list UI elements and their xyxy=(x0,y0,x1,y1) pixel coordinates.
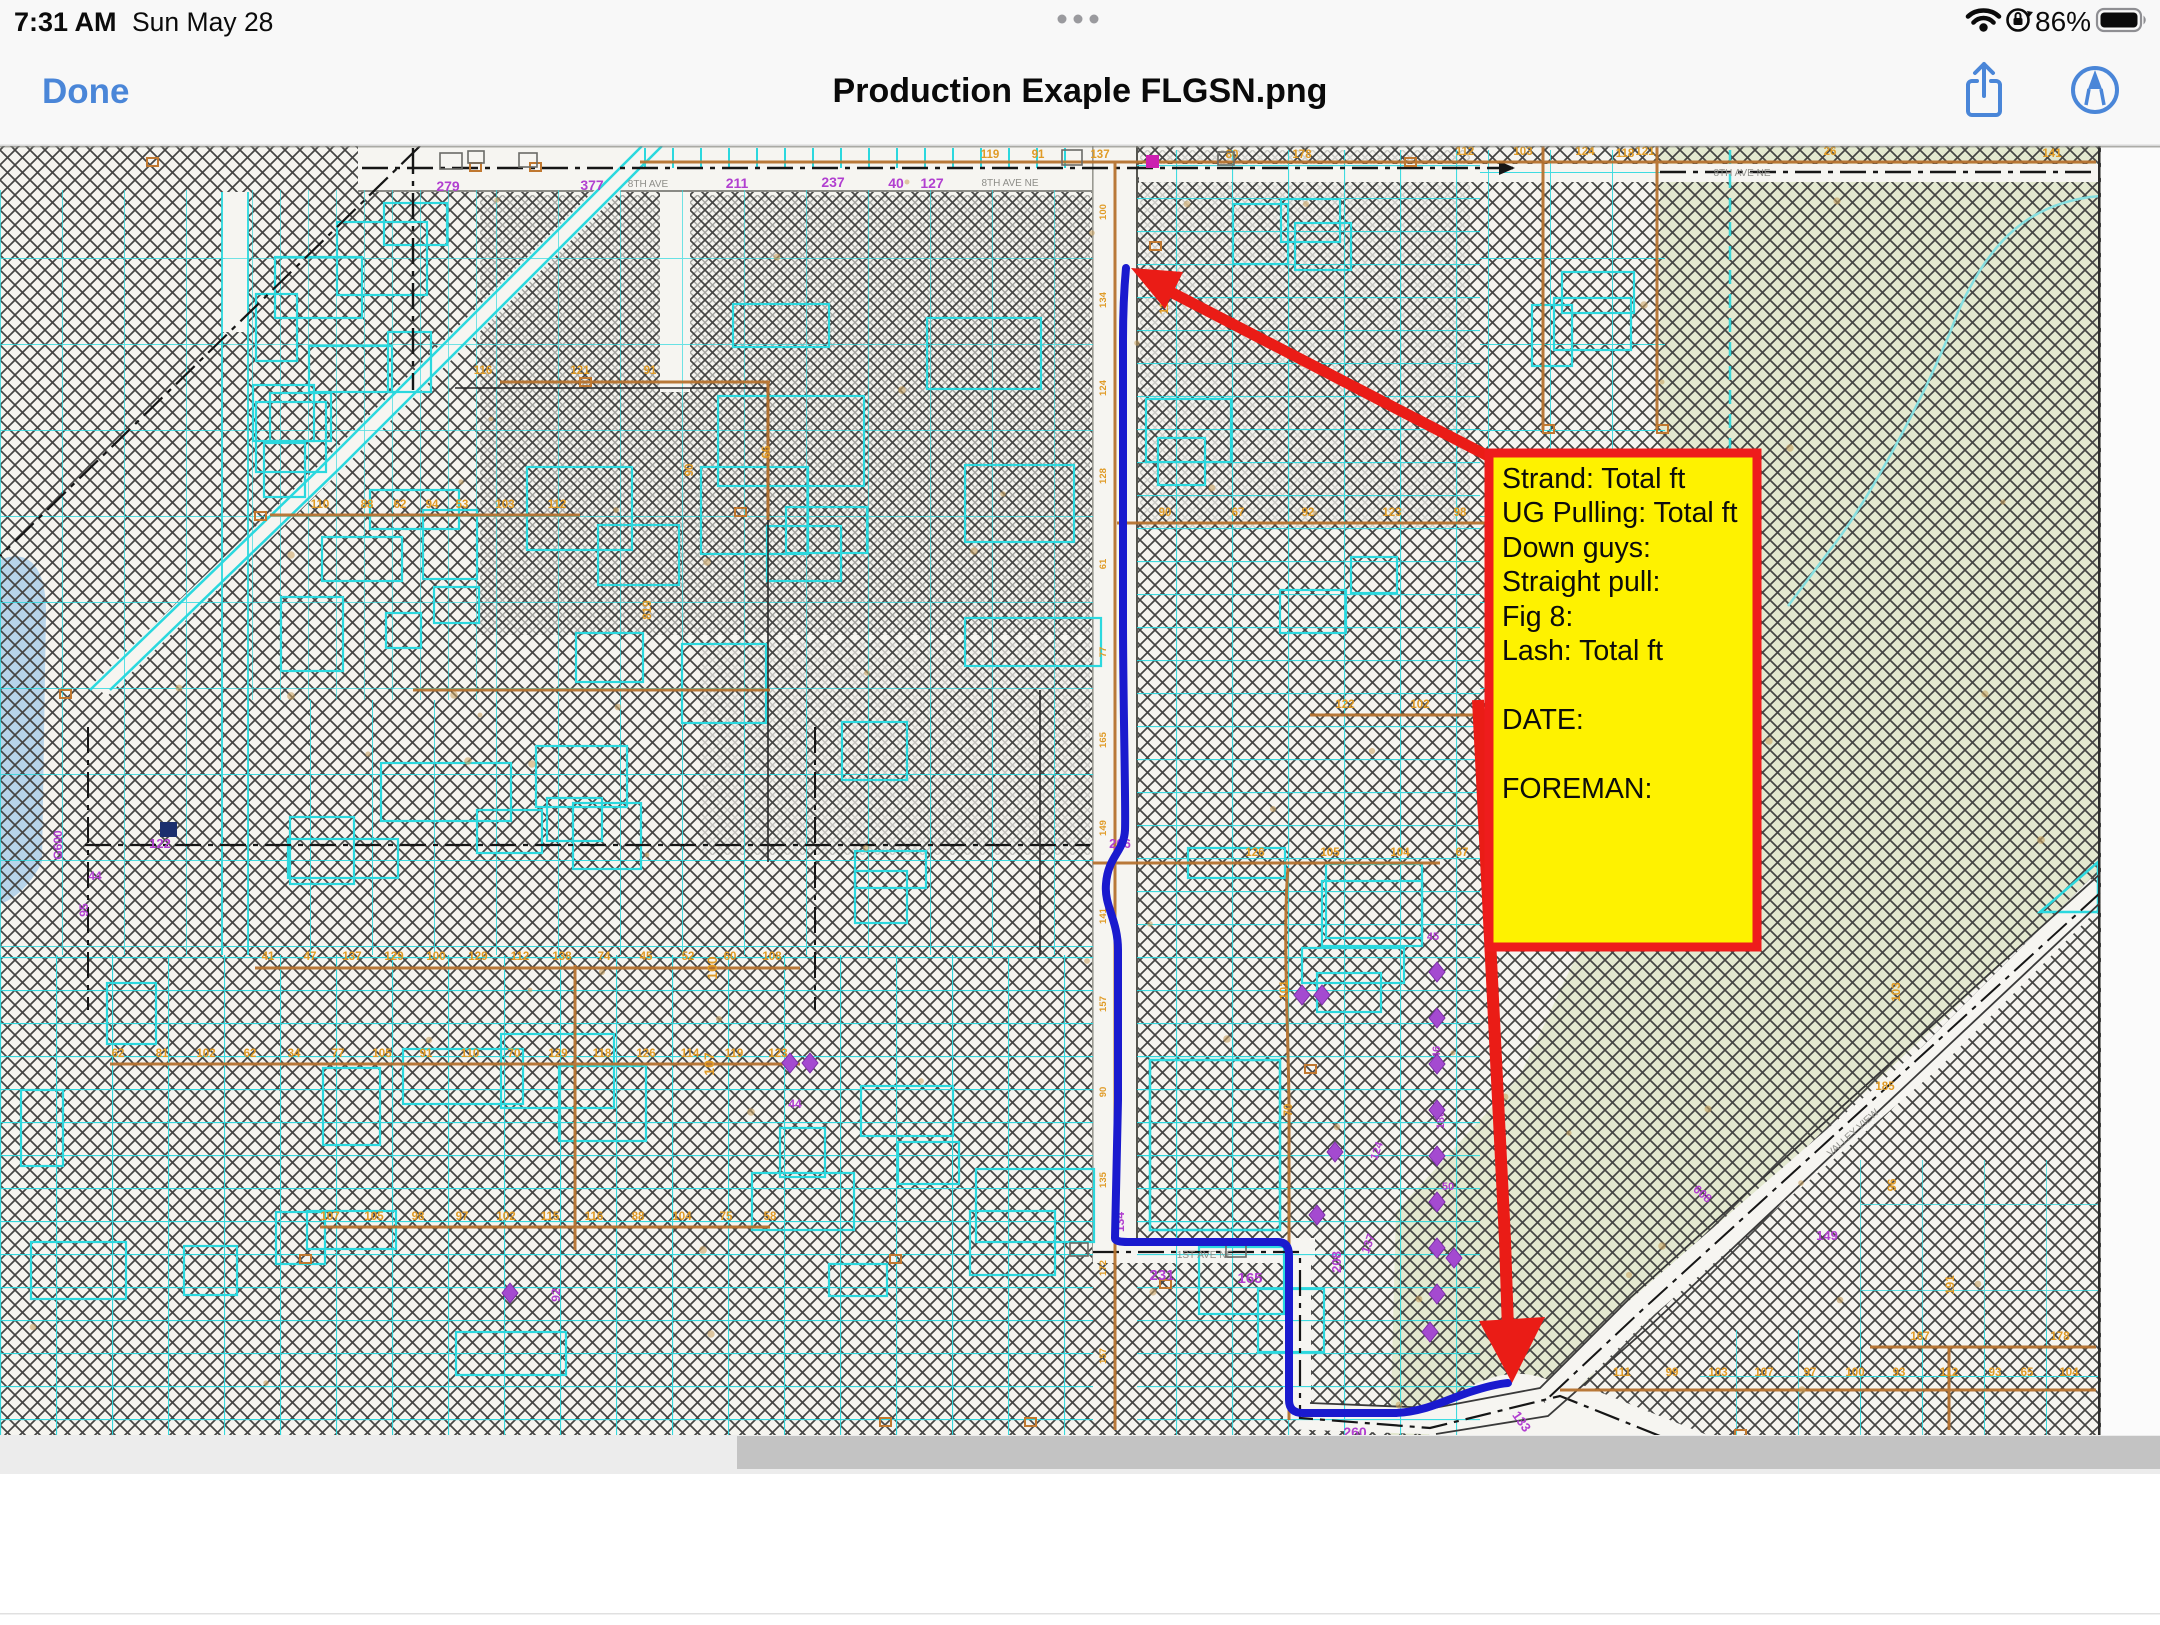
svg-text:112: 112 xyxy=(511,951,530,963)
svg-text:137: 137 xyxy=(342,951,361,963)
svg-text:165: 165 xyxy=(1237,1270,1262,1287)
svg-text:70: 70 xyxy=(1283,1104,1295,1117)
svg-text:119: 119 xyxy=(981,149,1000,161)
svg-text:41: 41 xyxy=(262,951,275,963)
svg-text:112: 112 xyxy=(548,499,567,511)
svg-text:Sun May 28: Sun May 28 xyxy=(132,7,273,37)
svg-text:104: 104 xyxy=(1390,847,1410,859)
svg-text:100: 100 xyxy=(704,956,720,980)
svg-text:157: 157 xyxy=(1098,1348,1109,1364)
svg-text:97: 97 xyxy=(1804,1367,1817,1379)
svg-text:112: 112 xyxy=(1456,146,1475,158)
svg-text:102: 102 xyxy=(1410,699,1429,711)
svg-text:108: 108 xyxy=(762,951,782,963)
svg-text:47: 47 xyxy=(304,951,317,963)
svg-text:93: 93 xyxy=(1893,1367,1906,1379)
svg-text:105: 105 xyxy=(1320,847,1340,859)
svg-text:101: 101 xyxy=(1279,980,1291,1000)
svg-text:90: 90 xyxy=(1098,1087,1109,1098)
svg-text:178: 178 xyxy=(1292,149,1312,161)
svg-text:114: 114 xyxy=(681,1048,700,1060)
svg-text:DATE:: DATE: xyxy=(1502,704,1584,736)
svg-text:105: 105 xyxy=(372,1048,392,1060)
svg-text:FOREMAN:: FOREMAN: xyxy=(1502,773,1652,805)
svg-text:45: 45 xyxy=(640,951,653,963)
svg-text:237: 237 xyxy=(821,174,845,190)
svg-text:138: 138 xyxy=(552,951,572,963)
svg-text:62: 62 xyxy=(112,1048,125,1060)
svg-text:96: 96 xyxy=(1887,1179,1899,1192)
svg-text:53: 53 xyxy=(456,499,469,511)
svg-text:119: 119 xyxy=(725,1048,744,1060)
svg-text:115: 115 xyxy=(541,1211,560,1223)
svg-text:107: 107 xyxy=(320,1211,339,1223)
svg-text:141: 141 xyxy=(2042,148,2062,160)
svg-text:81: 81 xyxy=(156,1048,169,1060)
svg-text:8TH AVE: 8TH AVE xyxy=(628,179,669,190)
svg-text:149: 149 xyxy=(1098,820,1109,836)
svg-text:377: 377 xyxy=(580,177,604,193)
svg-text:99: 99 xyxy=(1666,1367,1679,1379)
svg-text:819: 819 xyxy=(642,600,654,619)
svg-text:103: 103 xyxy=(1513,146,1532,158)
svg-text:167: 167 xyxy=(1910,1331,1929,1343)
svg-text:121: 121 xyxy=(1635,146,1655,158)
svg-text:77: 77 xyxy=(1098,647,1109,658)
svg-text:231: 231 xyxy=(1149,1267,1174,1284)
svg-text:100: 100 xyxy=(426,951,445,963)
svg-text:191: 191 xyxy=(1945,1275,1957,1295)
svg-text:91: 91 xyxy=(644,365,657,377)
svg-text:122: 122 xyxy=(1335,699,1354,711)
svg-text:61: 61 xyxy=(1098,558,1109,569)
svg-text:97: 97 xyxy=(456,1211,469,1223)
svg-text:62: 62 xyxy=(394,499,407,511)
svg-text:66: 66 xyxy=(761,446,773,459)
svg-text:40: 40 xyxy=(888,175,904,191)
svg-text:91: 91 xyxy=(420,1048,433,1060)
svg-text:1ST AVE NE: 1ST AVE NE xyxy=(1177,1250,1234,1261)
svg-text:8TH AVE NE: 8TH AVE NE xyxy=(981,178,1038,189)
svg-text:52: 52 xyxy=(682,951,695,963)
svg-text:105: 105 xyxy=(364,1211,384,1223)
svg-text:67: 67 xyxy=(1232,507,1245,519)
svg-text:118: 118 xyxy=(593,1048,612,1060)
svg-text:92: 92 xyxy=(549,1288,563,1302)
svg-text:118: 118 xyxy=(1616,148,1635,160)
svg-text:110: 110 xyxy=(311,499,330,511)
svg-text:116: 116 xyxy=(585,1211,604,1223)
svg-text:60: 60 xyxy=(724,951,737,963)
svg-text:126: 126 xyxy=(636,1048,655,1060)
svg-text:88: 88 xyxy=(632,1211,645,1223)
svg-text:107: 107 xyxy=(701,1052,717,1076)
svg-text:103: 103 xyxy=(495,499,514,511)
svg-text:124: 124 xyxy=(1575,146,1595,158)
svg-text:103: 103 xyxy=(1891,982,1903,1001)
svg-text:126: 126 xyxy=(1245,847,1264,859)
svg-text:104: 104 xyxy=(672,1211,692,1223)
svg-text:94: 94 xyxy=(426,499,439,511)
svg-text:107: 107 xyxy=(1754,1367,1773,1379)
svg-text:95: 95 xyxy=(77,903,91,917)
svg-text:Down guys:: Down guys: xyxy=(1502,532,1651,564)
svg-text:Production Exaple FLGSN.png: Production Exaple FLGSN.png xyxy=(833,72,1328,110)
svg-text:67: 67 xyxy=(1456,847,1469,859)
svg-text:102: 102 xyxy=(196,1048,215,1060)
svg-text:7:31 AM: 7:31 AM xyxy=(14,7,117,37)
svg-text:100: 100 xyxy=(1845,1367,1864,1379)
svg-text:279: 279 xyxy=(436,178,460,194)
svg-text:102: 102 xyxy=(496,1211,515,1223)
svg-text:100: 100 xyxy=(1098,204,1109,220)
svg-text:8TH AVE NE: 8TH AVE NE xyxy=(1713,168,1770,179)
svg-text:98: 98 xyxy=(412,1211,425,1223)
svg-text:121: 121 xyxy=(570,365,590,377)
svg-text:165: 165 xyxy=(1098,731,1109,748)
svg-text:92: 92 xyxy=(1302,507,1315,519)
svg-text:128: 128 xyxy=(1098,468,1109,484)
svg-text:172: 172 xyxy=(1098,1260,1109,1276)
svg-text:34: 34 xyxy=(288,1048,301,1060)
svg-text:127: 127 xyxy=(920,175,944,191)
svg-text:58: 58 xyxy=(764,1211,777,1223)
svg-text:88: 88 xyxy=(361,499,374,511)
svg-text:Straight pull:: Straight pull: xyxy=(1502,566,1660,598)
svg-text:44: 44 xyxy=(788,1097,802,1111)
svg-text:91: 91 xyxy=(1032,149,1045,161)
svg-text:50: 50 xyxy=(1442,1181,1454,1193)
svg-text:135: 135 xyxy=(1098,1171,1109,1188)
svg-text:74: 74 xyxy=(598,951,611,963)
svg-text:44: 44 xyxy=(88,869,102,883)
svg-text:123: 123 xyxy=(1382,507,1401,519)
svg-text:93: 93 xyxy=(1989,1367,2002,1379)
svg-text:45: 45 xyxy=(1427,931,1439,943)
svg-text:208: 208 xyxy=(1329,1251,1344,1273)
svg-text:65: 65 xyxy=(2021,1367,2034,1379)
svg-text:77: 77 xyxy=(332,1048,345,1060)
svg-text:129: 129 xyxy=(384,951,403,963)
svg-text:178: 178 xyxy=(2050,1331,2070,1343)
svg-text:110: 110 xyxy=(461,1048,480,1060)
svg-text:112: 112 xyxy=(1940,1367,1959,1379)
svg-text:86%: 86% xyxy=(2035,6,2091,37)
svg-text:103: 103 xyxy=(1708,1367,1727,1379)
svg-text:70: 70 xyxy=(508,1048,521,1060)
svg-text:137: 137 xyxy=(1090,149,1109,161)
svg-text:80: 80 xyxy=(1226,149,1239,161)
svg-text:90: 90 xyxy=(1159,507,1172,519)
svg-text:Done: Done xyxy=(42,72,130,111)
svg-text:90: 90 xyxy=(684,464,696,477)
svg-text:Lash: Total ft: Lash: Total ft xyxy=(1502,635,1663,667)
svg-text:104: 104 xyxy=(2059,1367,2079,1379)
svg-text:129: 129 xyxy=(468,951,487,963)
svg-text:75: 75 xyxy=(720,1211,733,1223)
svg-text:Fig 8:: Fig 8: xyxy=(1502,601,1573,633)
svg-text:UG Pulling: Total ft: UG Pulling: Total ft xyxy=(1502,497,1738,529)
svg-text:123: 123 xyxy=(768,1048,787,1060)
svg-text:62: 62 xyxy=(244,1048,257,1060)
svg-text:Strand: Total ft: Strand: Total ft xyxy=(1502,463,1685,495)
svg-text:111: 111 xyxy=(1613,1367,1632,1379)
svg-text:129: 129 xyxy=(548,1048,567,1060)
svg-text:116: 116 xyxy=(474,365,493,377)
svg-text:G600: G600 xyxy=(51,830,65,860)
svg-text:157: 157 xyxy=(1098,996,1109,1012)
svg-text:124: 124 xyxy=(1098,379,1109,396)
svg-text:185: 185 xyxy=(1875,1081,1895,1093)
svg-text:149: 149 xyxy=(1816,1228,1838,1243)
svg-text:134: 134 xyxy=(1098,291,1109,308)
svg-text:211: 211 xyxy=(726,175,749,191)
svg-text:26: 26 xyxy=(1824,146,1837,158)
svg-text:98: 98 xyxy=(1454,507,1467,519)
svg-text:122: 122 xyxy=(149,836,171,851)
